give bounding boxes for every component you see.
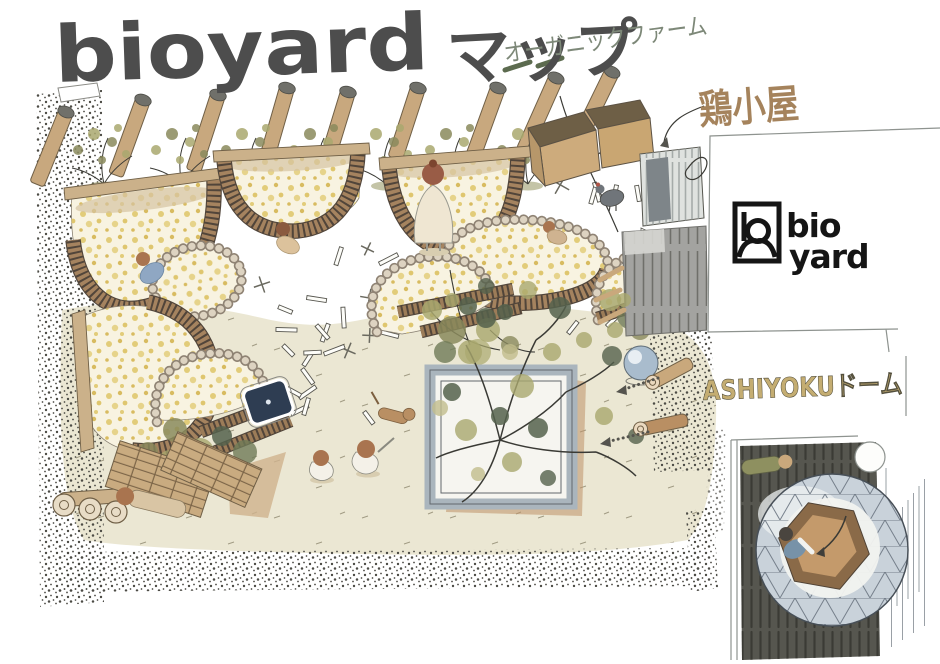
geodesic-dome	[756, 474, 908, 626]
stick	[304, 350, 322, 355]
map-illustration: bio yard	[0, 0, 940, 664]
label-chicken-coop: 鶏小屋	[697, 81, 800, 134]
logo-text-yard: yard	[789, 237, 869, 276]
stick	[276, 327, 297, 332]
stick	[341, 307, 346, 328]
bioyard-map-poster: bio yard	[0, 0, 940, 664]
logo-panel: bio yard	[707, 126, 940, 352]
deck-stone	[855, 442, 885, 472]
title-latin: bioyard	[53, 0, 431, 101]
